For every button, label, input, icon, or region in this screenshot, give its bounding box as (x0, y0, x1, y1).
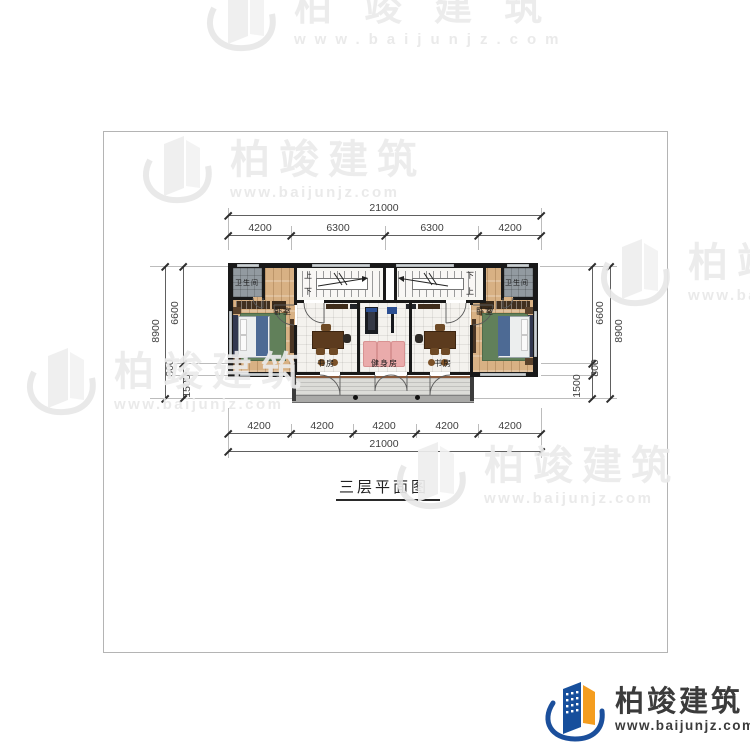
company-logo: 柏竣建筑 www.baijunjz.com (543, 677, 750, 743)
dim-bottom-seg4: 4200 (417, 420, 477, 432)
plan-annotations (228, 263, 538, 403)
drawing-title: 三层平面图 (324, 476, 444, 497)
dim-bottom-seg2: 4200 (292, 420, 352, 432)
dim-right-total: 8900 (613, 309, 625, 353)
watermark-url: www.baijunjz.com (294, 31, 574, 48)
watermark-url: www.baijunjz.com (688, 287, 750, 304)
dim-top-total: 21000 (354, 202, 414, 214)
extension-line (540, 266, 617, 267)
watermark-brand: 柏竣建筑 (294, 0, 574, 27)
room-label-bedroom-right: 卧室 (476, 306, 494, 317)
stair-label-down-left: 下 (304, 286, 312, 297)
extension-line (291, 226, 292, 250)
dim-right-seg1: 6600 (594, 291, 606, 335)
dim-left-total: 8900 (150, 309, 162, 353)
floorplan-page: 柏竣建筑 www.baijunjz.com 柏竣建筑 www.baijunjz.… (0, 0, 750, 750)
company-logo-icon (543, 677, 607, 743)
dim-top-seg3: 6300 (402, 222, 462, 234)
dim-bottom-total: 21000 (354, 438, 414, 450)
room-label-bedroom-left: 卧室 (274, 306, 292, 317)
extension-line (150, 266, 228, 267)
company-logo-url: www.baijunjz.com (615, 718, 750, 733)
dimension-line (228, 433, 541, 434)
dimension-line (610, 266, 611, 398)
room-label-gym: 健身房 (371, 358, 398, 369)
room-label-bathroom-left: 卫生间 (235, 278, 259, 288)
room-label-study-right: 书房 (434, 358, 452, 369)
extension-line (385, 226, 386, 250)
dim-bottom-seg5: 4200 (480, 420, 540, 432)
dim-left-seg2: 800 (164, 346, 176, 390)
watermark-logo-icon (22, 342, 100, 422)
watermark-logo-icon (202, 0, 280, 58)
dim-left-seg3: 1500 (181, 364, 193, 408)
room-label-bathroom-right: 卫生间 (505, 278, 529, 288)
extension-line (478, 226, 479, 250)
dim-top-seg4: 4200 (480, 222, 540, 234)
dimension-line (228, 451, 541, 452)
dim-top-seg1: 4200 (230, 222, 290, 234)
stair-label-down-right: 下 (466, 270, 474, 281)
watermark-brand: 柏竣建筑 (688, 243, 750, 283)
floor-plan: 卫生间 卫生间 卧室 卧室 书房 健身房 书房 上 下 下 上 (228, 263, 538, 403)
dim-right-seg3: 1500 (571, 364, 583, 408)
dim-bottom-seg3: 4200 (354, 420, 414, 432)
title-underline (336, 499, 440, 501)
dim-right-seg2: 800 (589, 346, 601, 390)
dim-top-seg2: 6300 (308, 222, 368, 234)
dimension-line (228, 215, 541, 216)
stair-label-up-left: 上 (304, 270, 312, 281)
watermark-top: 柏竣建筑 www.baijunjz.com (202, 0, 574, 58)
dim-bottom-seg1: 4200 (229, 420, 289, 432)
room-label-study-left: 书房 (317, 358, 335, 369)
stair-label-up-right: 上 (466, 286, 474, 297)
dim-left-seg1: 6600 (169, 291, 181, 335)
company-logo-brand: 柏竣建筑 (615, 687, 750, 719)
